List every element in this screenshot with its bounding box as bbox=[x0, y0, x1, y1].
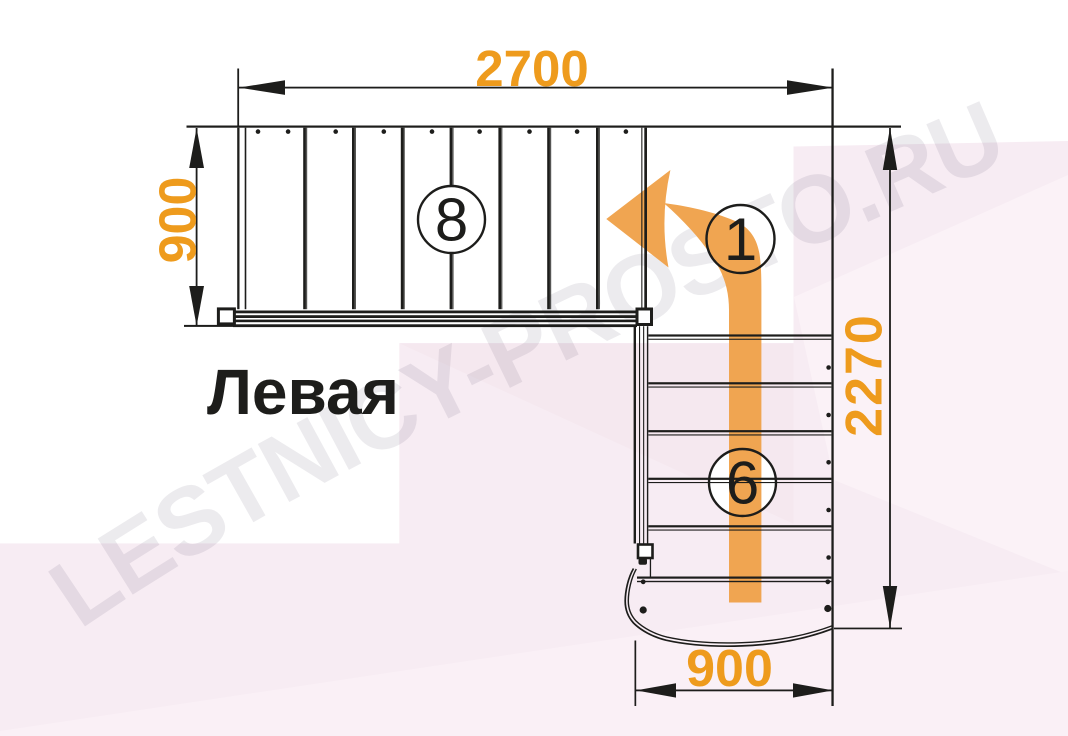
svg-text:6: 6 bbox=[726, 450, 759, 517]
svg-text:8: 8 bbox=[435, 187, 468, 254]
svg-text:1: 1 bbox=[724, 206, 757, 273]
svg-text:Левая: Левая bbox=[207, 356, 399, 428]
svg-text:900: 900 bbox=[149, 177, 207, 264]
svg-text:900: 900 bbox=[686, 640, 773, 698]
svg-text:2700: 2700 bbox=[475, 40, 588, 97]
svg-text:2270: 2270 bbox=[836, 313, 894, 437]
